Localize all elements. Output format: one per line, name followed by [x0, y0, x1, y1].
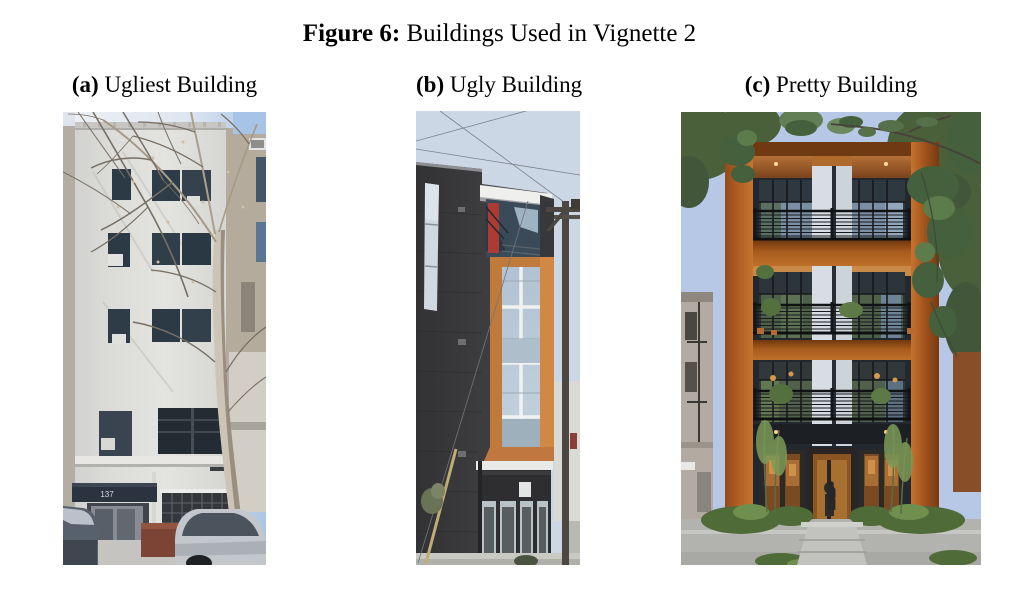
svg-text:137: 137 — [100, 490, 114, 499]
